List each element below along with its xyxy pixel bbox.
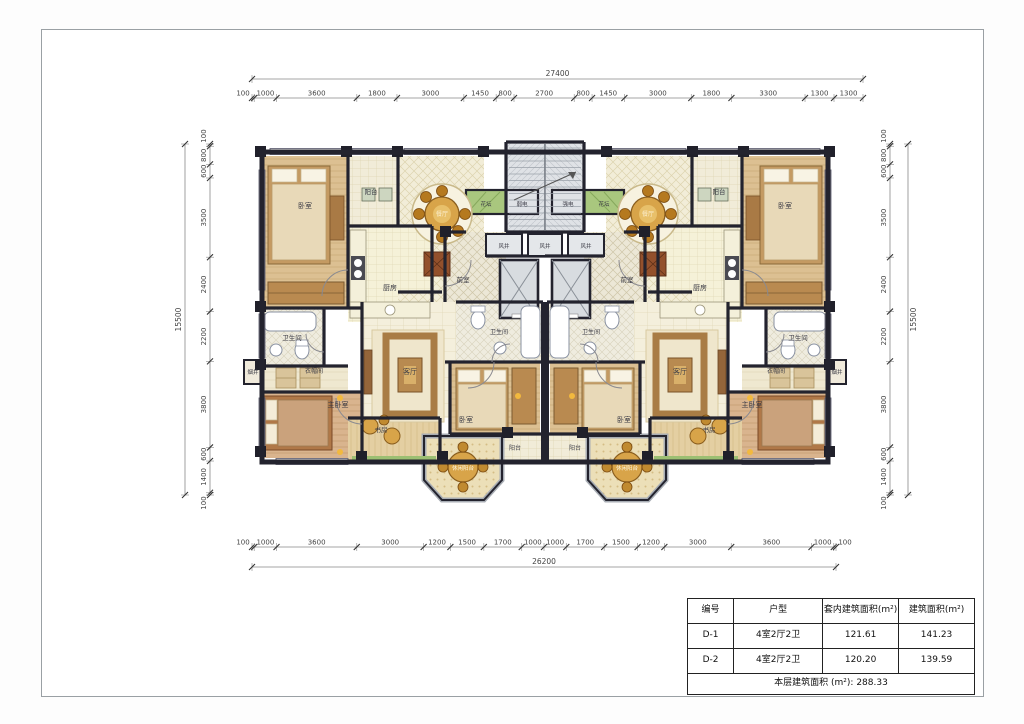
dim-label: 1000: [256, 539, 274, 547]
pillow: [458, 370, 480, 382]
total-floor-area: 本层建筑面积 (m²): 288.33: [688, 674, 975, 695]
pillow: [266, 424, 277, 444]
dim-label: 3600: [308, 90, 326, 98]
room-label-bathroom: 卫生间: [490, 328, 508, 336]
unit-type: 4室2厅2卫: [734, 649, 823, 674]
dim-label: 800: [880, 149, 888, 162]
dim-label: 100: [838, 539, 851, 547]
room-label-flower_bed: 花坛: [598, 200, 610, 208]
room-label-smoke_shaft: 烟井: [831, 368, 843, 376]
header-type: 户型: [734, 599, 823, 624]
room-label-dining: 餐厅: [642, 210, 654, 218]
pillow: [301, 169, 326, 182]
dim-label: 3800: [880, 396, 888, 414]
area-summary-table: 编号 户型 套内建筑面积(m²) 建筑面积(m²) D-1 4室2厅2卫 121…: [687, 598, 975, 695]
drawing-sheet: { "dimensions": { "top": {"total": "2740…: [0, 0, 1024, 724]
dim-label: 1000: [524, 539, 542, 547]
pillow: [484, 370, 506, 382]
room-label-closet: 衣帽间: [305, 367, 323, 375]
dim-label: 1200: [428, 539, 446, 547]
room-label-flower_bed: 花坛: [480, 200, 492, 208]
dim-label: 3800: [200, 396, 208, 414]
room-label-bathroom: 卫生间: [582, 328, 600, 336]
dim-label: 1200: [642, 539, 660, 547]
dim-label: 600: [880, 164, 888, 177]
kitchen-sink: [385, 305, 395, 315]
dim-label: 1450: [471, 90, 489, 98]
room-label-study: 书房: [375, 425, 388, 434]
table-row: D-2 4室2厅2卫 120.20 139.59: [688, 649, 975, 674]
room-label-dining: 餐厅: [436, 210, 448, 218]
dim-label: 1800: [368, 90, 386, 98]
dining-chair: [437, 186, 448, 197]
dim-label: 1000: [256, 90, 274, 98]
tv-cabinet: [364, 350, 372, 394]
dim-label: 3500: [200, 209, 208, 227]
dim-label: 1700: [494, 539, 512, 547]
dim-total: 27400: [546, 69, 570, 78]
unit-type: 4室2厅2卫: [734, 624, 823, 649]
room-label-balcony: 阳台: [509, 444, 521, 452]
room-label-balcony: 阳台: [713, 187, 726, 196]
unit-gross-area: 139.59: [899, 649, 975, 674]
dim-label: 1700: [576, 539, 594, 547]
room-label-weak_electric: 弱电: [516, 200, 528, 208]
dim-label: 1000: [546, 539, 564, 547]
room-label-leisure_balcony: 休闲阳台: [452, 464, 475, 472]
dim-label: 2400: [880, 275, 888, 293]
dim-label: 1500: [458, 539, 476, 547]
room-label-bathroom: 卫生间: [282, 333, 302, 342]
dim-label: 1400: [200, 468, 208, 486]
header-id: 编号: [688, 599, 734, 624]
room-label-closet: 衣帽间: [767, 367, 785, 375]
dining-chair: [414, 209, 425, 220]
room-label-air_shaft: 风井: [580, 242, 592, 250]
dim-label: 800: [498, 90, 511, 98]
dim-label: 600: [200, 164, 208, 177]
room-label-bathroom: 卫生间: [788, 333, 808, 342]
room-label-smoke_shaft: 烟井: [247, 368, 259, 376]
dim-total: 15500: [909, 307, 918, 331]
dim-total: 26200: [532, 557, 556, 566]
lamp: [515, 393, 521, 399]
room-label-bedroom: 卧室: [298, 201, 312, 210]
dim-label: 2700: [535, 90, 553, 98]
balcony-chair: [458, 442, 468, 452]
toilet-tank: [471, 306, 485, 312]
plan-shape: [354, 270, 362, 278]
header-gross-area: 建筑面积(m²): [899, 599, 975, 624]
column: [440, 226, 451, 237]
bathtub: [521, 306, 540, 358]
room-label-master_bedroom: 主卧室: [328, 400, 349, 409]
room-label-bedroom: 卧室: [778, 201, 792, 210]
dining-chair: [421, 192, 432, 203]
room-label-strong_electric: 强电: [562, 200, 574, 208]
unit-id: D-2: [688, 649, 734, 674]
dim-label: 100: [236, 90, 249, 98]
dim-label: 600: [200, 448, 208, 461]
dim-label: 100: [200, 496, 208, 509]
washbasin: [270, 344, 282, 356]
dim-label: 100: [200, 129, 208, 142]
dining-chair: [460, 209, 471, 220]
dim-label: 100: [236, 539, 249, 547]
room-label-lobby: 前室: [457, 275, 471, 284]
room-label-air_shaft: 风井: [539, 242, 551, 250]
dim-label: 3600: [308, 539, 326, 547]
dim-total: 15500: [174, 307, 183, 331]
table-header-row: 编号 户型 套内建筑面积(m²) 建筑面积(m²): [688, 599, 975, 624]
dim-label: 1000: [814, 539, 832, 547]
dresser: [330, 196, 344, 240]
dim-label: 3000: [381, 539, 399, 547]
unit-gross-area: 141.23: [899, 624, 975, 649]
room-label-bedroom: 卧室: [617, 415, 631, 424]
dim-label: 800: [576, 90, 589, 98]
bathtub: [264, 312, 316, 331]
dim-label: 3600: [762, 539, 780, 547]
dim-label: 100: [880, 129, 888, 142]
dimension-right: 1008006003500240022003800600140010015500: [880, 129, 918, 509]
dim-label: 600: [880, 448, 888, 461]
dim-label: 1400: [880, 468, 888, 486]
room-label-kitchen: 厨房: [693, 283, 707, 292]
bed-mattress: [272, 184, 326, 260]
room-label-balcony: 阳台: [365, 187, 378, 196]
balcony-chair: [458, 482, 468, 492]
lamp: [337, 449, 343, 455]
dimension-top: 1001000360018003000145080027008001450300…: [236, 69, 866, 102]
dim-label: 1300: [840, 90, 858, 98]
room-label-air_shaft: 风井: [498, 242, 510, 250]
dim-label: 2400: [200, 275, 208, 293]
dim-label: 2200: [200, 328, 208, 346]
room-label-kitchen: 厨房: [383, 283, 397, 292]
toilet: [471, 311, 485, 329]
dimension-left: 1008006003500240022003800600140010015500: [174, 129, 214, 509]
dim-label: 2200: [880, 328, 888, 346]
dim-label: 1300: [811, 90, 829, 98]
room-label-bedroom: 卧室: [459, 415, 473, 424]
room-label-living: 客厅: [403, 367, 417, 376]
column: [502, 427, 513, 438]
dim-label: 3000: [421, 90, 439, 98]
room-label-study: 书房: [703, 425, 716, 434]
washbasin: [494, 342, 506, 354]
dim-label: 3000: [689, 539, 707, 547]
dim-label: 1450: [599, 90, 617, 98]
dim-label: 800: [200, 149, 208, 162]
room-label-balcony: 阳台: [569, 444, 581, 452]
room-label-living: 客厅: [673, 367, 687, 376]
dim-label: 1500: [612, 539, 630, 547]
master-mattress: [278, 400, 328, 446]
unit-id: D-1: [688, 624, 734, 649]
plan-shape: [354, 259, 362, 267]
table-row: D-1 4室2厅2卫 121.61 141.23: [688, 624, 975, 649]
pillow: [272, 169, 297, 182]
header-inner-area: 套内建筑面积(m²): [823, 599, 899, 624]
room-label-leisure_balcony: 休闲阳台: [616, 464, 639, 472]
dim-label: 3500: [880, 209, 888, 227]
unit-inner-area: 121.61: [823, 624, 899, 649]
dim-label: 100: [880, 496, 888, 509]
pillow: [266, 400, 277, 420]
unit-inner-area: 120.20: [823, 649, 899, 674]
room-label-lobby: 前室: [621, 275, 635, 284]
table-footer-row: 本层建筑面积 (m²): 288.33: [688, 674, 975, 695]
sink: [379, 188, 392, 201]
dim-label: 1800: [702, 90, 720, 98]
dim-label: 3300: [759, 90, 777, 98]
room-label-master_bedroom: 主卧室: [742, 400, 763, 409]
dim-label: 3000: [649, 90, 667, 98]
dimension-bottom: 1001000360030001200150017001000100017001…: [236, 539, 851, 572]
